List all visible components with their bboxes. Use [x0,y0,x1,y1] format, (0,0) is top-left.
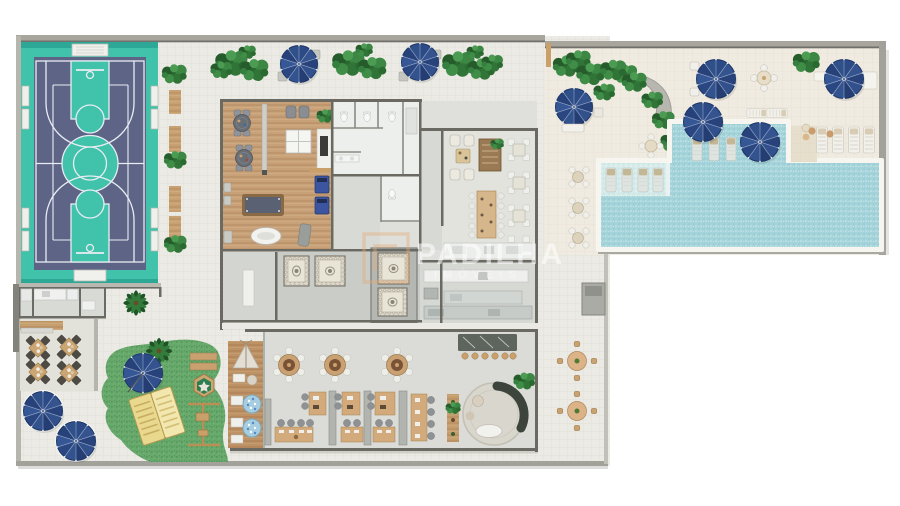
svg-text:IMÓVEIS: IMÓVEIS [434,268,522,281]
svg-text:PADILHA: PADILHA [416,238,565,271]
